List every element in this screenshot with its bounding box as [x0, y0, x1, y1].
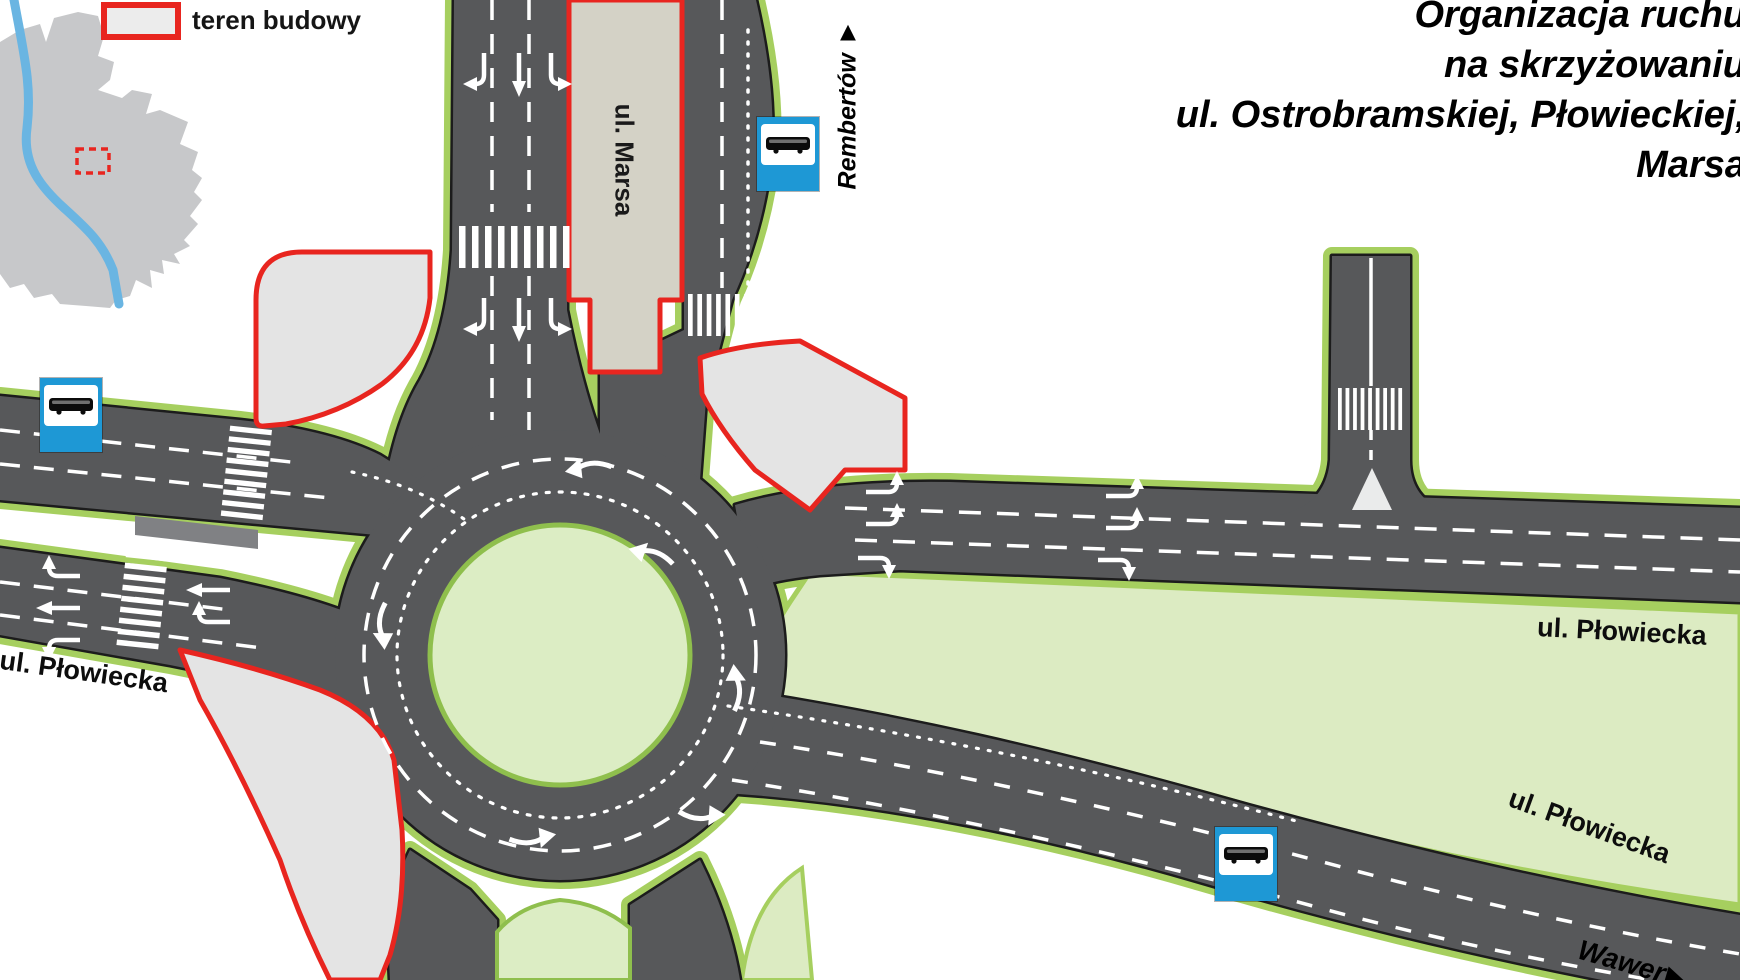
warsaw-inset-map	[0, 0, 202, 308]
bus-stop-icon	[757, 117, 819, 191]
title-line-4: Marsa	[1176, 140, 1740, 190]
rembertow-name: Rembertów	[834, 53, 863, 189]
traffic-organization-map: teren budowy Organizacja ruchu na skrzyż…	[0, 0, 1740, 980]
green-field-south	[742, 868, 812, 980]
bus-glyph	[44, 385, 99, 426]
bus-glyph	[761, 124, 816, 165]
direction-label-rembertow: Rembertów ▲	[833, 19, 864, 190]
title-line-2: na skrzyżowaniu	[1176, 40, 1740, 90]
legend-construction-swatch	[101, 2, 181, 40]
roundabout-central-island	[430, 525, 690, 785]
title-line-1: Organizacja ruchu	[1176, 0, 1740, 40]
rembertow-arrow-icon: ▲	[835, 16, 862, 47]
bus-glyph	[1219, 834, 1274, 875]
south-splitter-island	[497, 900, 630, 980]
legend-construction-label: teren budowy	[192, 5, 361, 36]
bus-stop-icon	[1215, 827, 1277, 901]
title-line-3: ul. Ostrobramskiej, Płowieckiej,	[1176, 90, 1740, 140]
street-label-marsa: ul. Marsa	[609, 104, 640, 217]
map-title: Organizacja ruchu na skrzyżowaniu ul. Os…	[1176, 0, 1740, 190]
bus-stop-icon	[40, 378, 102, 452]
